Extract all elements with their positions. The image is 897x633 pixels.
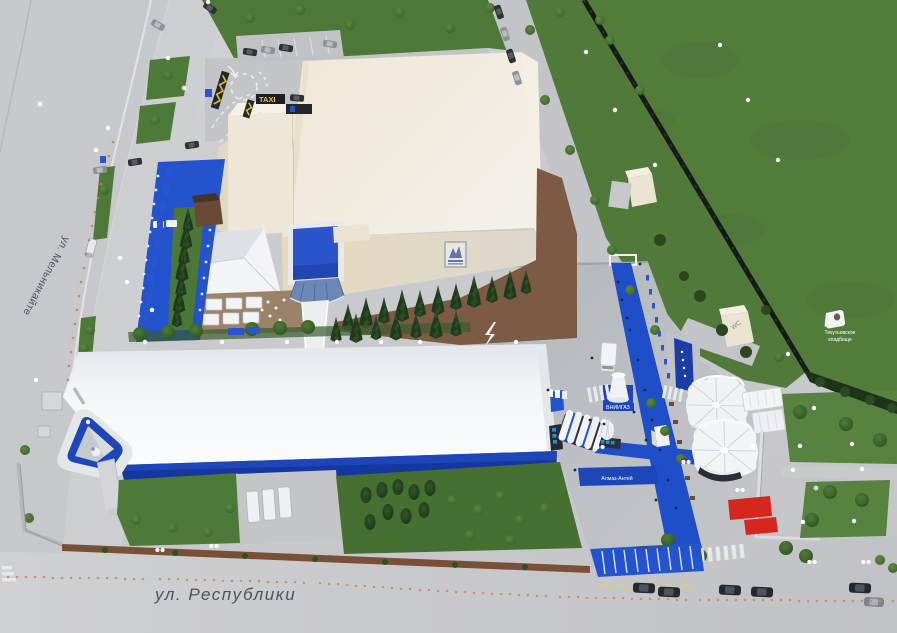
svg-text:Текутьевское: Текутьевское xyxy=(825,330,856,336)
svg-text:ВНИИГАЗ: ВНИИГАЗ xyxy=(606,405,630,411)
svg-text:кладбище: кладбище xyxy=(828,337,852,343)
svg-text:КПП – VIP: КПП – VIP xyxy=(637,546,663,552)
svg-text:ул. Республики: ул. Республики xyxy=(154,585,296,604)
svg-text:Алмаз-Антей: Алмаз-Антей xyxy=(601,475,633,482)
svg-text:TAXI: TAXI xyxy=(259,95,276,104)
